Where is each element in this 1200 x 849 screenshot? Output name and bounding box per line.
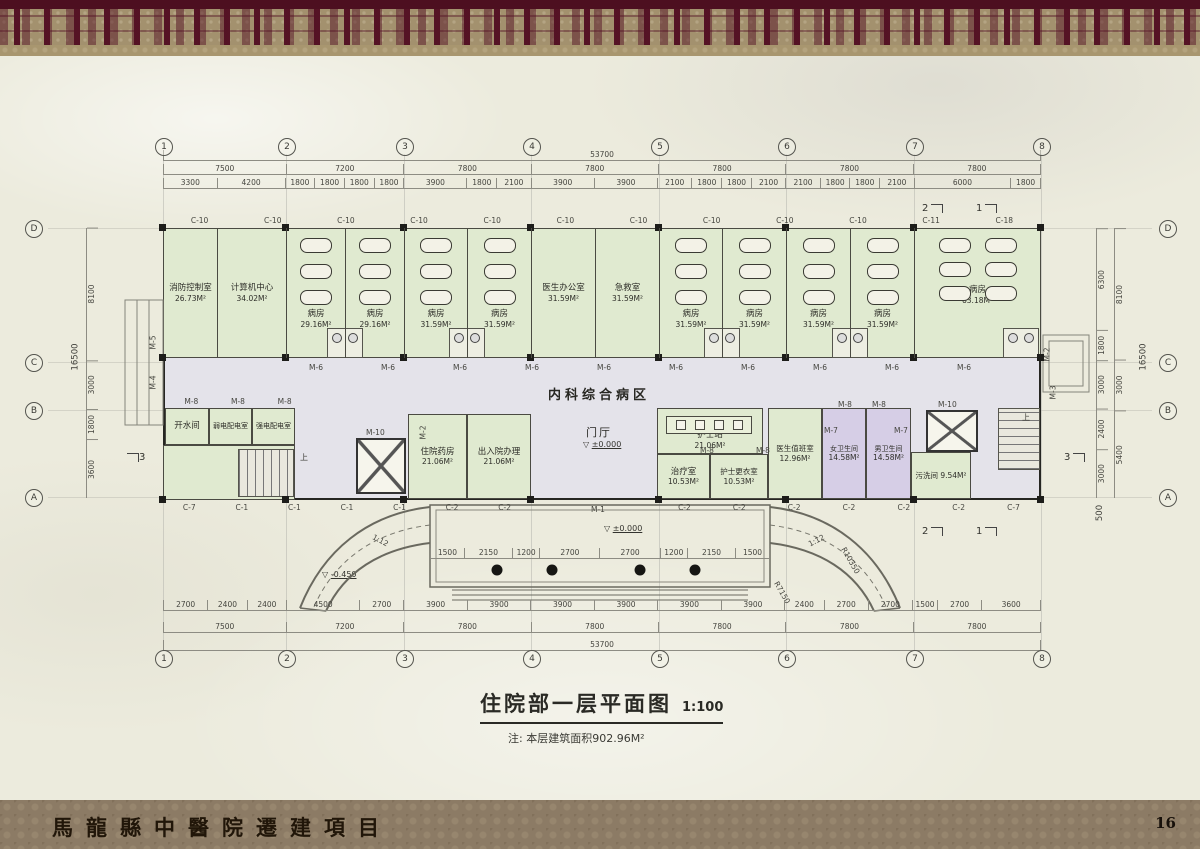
toilet-fixture-icon xyxy=(709,333,719,343)
dimension-value: 3900 xyxy=(721,600,784,610)
ramp-radius-outer-label: R10350 xyxy=(839,546,861,576)
opening-tag: C-10 xyxy=(483,216,501,225)
footer-band: 馬龍縣中醫院遷建項目 16 xyxy=(0,800,1200,849)
door-tag-m8: M-8 xyxy=(838,400,852,409)
toilet-fixture-icon xyxy=(332,333,342,343)
dimension-value: 3900 xyxy=(530,600,593,610)
structural-column xyxy=(282,496,289,503)
grid-bubble-3: 3 xyxy=(396,138,414,156)
room-name-label: 病房 xyxy=(405,309,467,320)
right-below-dimension: 500 xyxy=(1095,505,1105,521)
grid-bubble-3: 3 xyxy=(396,650,414,668)
stair-up-label: 上 xyxy=(300,452,308,463)
door-tag-m8: M-8 xyxy=(872,400,886,409)
room-area-label: 31.59M² xyxy=(532,294,595,303)
dimension-value: 7800 xyxy=(913,164,1041,174)
room-name-label: 开水间 xyxy=(174,421,200,432)
bed-group xyxy=(346,238,404,305)
dimension-value: 1800 xyxy=(849,178,879,188)
dimension-value: 2100 xyxy=(751,178,785,188)
opening-tag: C-2 xyxy=(498,503,511,512)
dimension-value: 3000 xyxy=(1097,360,1108,409)
opening-tag: M-8 xyxy=(231,397,245,406)
dimension-value: 1800 xyxy=(466,178,496,188)
nurse-counter xyxy=(666,416,752,434)
bottom-segment-dimensions: 2700240024004500270039003900390039003900… xyxy=(163,600,1041,611)
room-area-label: 34.02M² xyxy=(218,294,286,303)
grid-bubble-A: A xyxy=(25,489,43,507)
room-name-label: 污洗间 xyxy=(915,471,938,480)
dimension-value: 3600 xyxy=(981,600,1041,610)
structural-column xyxy=(1037,354,1044,361)
section-marker-2: 2 xyxy=(922,203,943,214)
toilet-fixture-icon xyxy=(725,333,735,343)
chair-icon xyxy=(695,420,705,430)
dimension-value: 2400 xyxy=(1097,409,1108,449)
structural-column xyxy=(159,496,166,503)
room-name-label: 病房 xyxy=(468,309,531,320)
opening-tag: M-6 xyxy=(957,363,971,372)
room-computer-center: 计算机中心 34.02M² xyxy=(217,228,287,358)
dimension-value: 1500 xyxy=(735,548,770,558)
bed-icon xyxy=(359,238,391,253)
stairs-east xyxy=(998,408,1040,470)
bed-icon xyxy=(675,290,707,305)
drawing-sheet: 馬龍縣中醫院遷建項目 16 消防控制室 26.73M² 计算机中心 34.02M… xyxy=(0,0,1200,849)
dimension-value: 3900 xyxy=(657,600,720,610)
dimension-value: 1800 xyxy=(691,178,721,188)
door-tag-m1: M-1 xyxy=(591,505,605,514)
bed-icon xyxy=(739,290,771,305)
room-name-label: 病房 xyxy=(787,309,850,320)
bed-group xyxy=(915,238,1040,301)
room-name-label: 急救室 xyxy=(596,283,659,294)
stair-up-label: 上 xyxy=(1022,412,1030,423)
bottom-bay-dimensions: 7500720078007800780078007800 xyxy=(163,622,1041,633)
room-name-label: 出入院办理 xyxy=(478,447,521,458)
room-name-label: 强电配电室 xyxy=(256,422,291,431)
partition-wall xyxy=(914,228,915,358)
opening-tag: M-8 xyxy=(184,397,198,406)
dimension-value: 2100 xyxy=(657,178,691,188)
opening-tag: C-2 xyxy=(952,503,965,512)
partition-wall xyxy=(531,228,532,358)
door-tag-m8: M-8 xyxy=(700,446,714,455)
structural-column xyxy=(159,224,166,231)
bed-icon xyxy=(484,290,516,305)
section-marker-1: 1 xyxy=(976,526,997,537)
drawing-scale: 1:100 xyxy=(682,700,723,715)
partition-wall xyxy=(345,228,346,358)
bed-icon xyxy=(739,264,771,279)
right-mid-dimensions: 810030005400 xyxy=(1114,228,1126,498)
grid-bubble-2: 2 xyxy=(278,138,296,156)
opening-tag: M-8 xyxy=(278,397,292,406)
room-name-label: 病房 xyxy=(660,309,722,320)
bed-group xyxy=(468,238,531,305)
door-tag-m7: M-7 xyxy=(894,426,908,435)
dimension-value: 7800 xyxy=(785,622,912,632)
room-area-label: 10.53M² xyxy=(724,477,755,486)
partition-wall xyxy=(786,228,787,358)
project-title: 馬龍縣中醫院遷建項目 xyxy=(52,812,392,842)
dimension-value: 2400 xyxy=(784,600,823,610)
toilet-fixture-icon xyxy=(470,333,480,343)
door-tag-m3: M-3 xyxy=(1048,386,1057,400)
room-area-label: 14.58M² xyxy=(829,453,860,462)
dimension-value: 1800 xyxy=(1010,178,1041,188)
opening-tag: C-2 xyxy=(733,503,746,512)
dimension-value: 1800 xyxy=(1097,330,1108,360)
dimension-value: 8100 xyxy=(1115,228,1126,360)
room-pharmacy: 住院药房 21.06M² xyxy=(408,414,467,499)
top-bay-dimensions: 7500720078007800780078007800 xyxy=(163,164,1041,175)
dimension-value: 1200 xyxy=(660,548,687,558)
opening-tag: C-2 xyxy=(446,503,459,512)
bed-icon xyxy=(675,238,707,253)
bed-icon xyxy=(484,264,516,279)
bed-icon xyxy=(939,286,971,301)
dimension-value: 3000 xyxy=(1115,360,1126,410)
grid-bubble-8: 8 xyxy=(1033,138,1051,156)
structural-column xyxy=(527,496,534,503)
dimension-value: 5400 xyxy=(1115,410,1126,498)
door-tag-m7: M-7 xyxy=(824,426,838,435)
bed-icon xyxy=(803,264,835,279)
grid-bubble-6: 6 xyxy=(778,138,796,156)
dimension-value: 2700 xyxy=(868,600,912,610)
room-fire-control: 消防控制室 26.73M² xyxy=(163,228,218,358)
opening-tag: C-7 xyxy=(1007,503,1020,512)
bed-icon xyxy=(420,264,452,279)
toilet-fixture-icon xyxy=(348,333,358,343)
right-inner-dimensions: 63001800300024003000 xyxy=(1096,228,1108,498)
grid-bubble-4: 4 xyxy=(523,138,541,156)
grid-bubble-7: 7 xyxy=(906,650,924,668)
dimension-value: 7800 xyxy=(913,622,1041,632)
dimension-value: 2100 xyxy=(879,178,913,188)
level-triangle-icon: ▽ xyxy=(322,570,328,579)
bed-group xyxy=(723,238,786,305)
room-name-label: 病房 xyxy=(287,309,345,320)
partition-wall xyxy=(217,228,218,358)
room-name-label: 治疗室 xyxy=(671,467,697,478)
room-treatment: 治疗室 10.53M² xyxy=(657,454,710,499)
opening-tag: C-18 xyxy=(996,216,1014,225)
grid-bubble-B: B xyxy=(1159,402,1177,420)
dimension-value: 2700 xyxy=(163,600,207,610)
bed-icon xyxy=(300,290,332,305)
room-area-label: 31.59M² xyxy=(596,294,659,303)
top-segment-dimensions: 3300420018001800180018003900180021003900… xyxy=(163,178,1041,189)
bed-icon xyxy=(359,264,391,279)
dimension-value: 2150 xyxy=(464,548,512,558)
opening-tag: C-10 xyxy=(337,216,355,225)
grid-bubble-D: D xyxy=(25,220,43,238)
bed-group xyxy=(787,238,850,305)
dimension-value: 8100 xyxy=(87,228,98,360)
bed-group xyxy=(851,238,914,305)
room-area-label: 10.53M² xyxy=(668,477,699,486)
opening-tag: C-11 xyxy=(922,216,940,225)
toilet-fixture-icon xyxy=(837,333,847,343)
dimension-value: 7200 xyxy=(286,622,404,632)
elevator-east xyxy=(926,410,978,452)
room-name-label: 弱电配电室 xyxy=(213,422,248,431)
partition-wall xyxy=(850,228,851,358)
room-weak-electric: 弱电配电室 xyxy=(209,408,252,445)
room-name-label: 女卫生间 xyxy=(830,445,858,454)
room-men-toilet: 男卫生间 14.58M² xyxy=(866,408,911,499)
grid-bubble-A: A xyxy=(1159,489,1177,507)
opening-tag: M-6 xyxy=(885,363,899,372)
bed-icon xyxy=(675,264,707,279)
room-area-label: 21.06M² xyxy=(422,457,453,466)
grid-bubble-D: D xyxy=(1159,220,1177,238)
ramp-level-marker: ▽ -0.450 xyxy=(322,570,357,579)
dimension-value: 1800 xyxy=(374,178,404,188)
bottom-right-window-tags: C-2C-2C-2C-2C-2C-2C-7 xyxy=(657,503,1041,512)
opening-tag: C-2 xyxy=(897,503,910,512)
structural-column xyxy=(655,496,662,503)
dimension-value: 3900 xyxy=(467,600,530,610)
structural-column xyxy=(910,496,917,503)
bed-icon xyxy=(300,238,332,253)
bed-icon xyxy=(420,290,452,305)
room-admission: 出入院办理 21.06M² xyxy=(467,414,531,499)
bed-icon xyxy=(985,286,1017,301)
dimension-value: 1800 xyxy=(314,178,344,188)
room-name-label: 病房 xyxy=(851,309,914,320)
opening-tag: C-10 xyxy=(557,216,575,225)
level-triangle-icon: ▽ xyxy=(604,524,610,533)
room-area-label: 14.58M² xyxy=(873,453,904,462)
grid-bubble-7: 7 xyxy=(906,138,924,156)
bed-icon xyxy=(867,290,899,305)
dimension-value: 7800 xyxy=(785,164,912,174)
door-tag-m8: M-8 xyxy=(756,446,770,455)
opening-tag: C-1 xyxy=(235,503,248,512)
room-area-label: 9.54M² xyxy=(940,471,966,480)
stairs-west xyxy=(238,449,294,497)
opening-tag: M-6 xyxy=(669,363,683,372)
chair-icon xyxy=(733,420,743,430)
opening-tag: C-10 xyxy=(849,216,867,225)
dimension-value: 3600 xyxy=(87,439,98,498)
grid-bubble-2: 2 xyxy=(278,650,296,668)
opening-tag: M-6 xyxy=(453,363,467,372)
opening-tag: M-6 xyxy=(381,363,395,372)
room-area-label: 26.73M² xyxy=(164,294,217,303)
dimension-value: 2100 xyxy=(496,178,530,188)
section-elbow-icon xyxy=(1073,453,1085,462)
dimension-value: 2700 xyxy=(359,600,403,610)
dimension-value: 2100 xyxy=(785,178,819,188)
bed-icon xyxy=(867,264,899,279)
bed-icon xyxy=(803,290,835,305)
right-total-dimension: 16500 xyxy=(1139,343,1149,370)
dimension-value: 1800 xyxy=(285,178,315,188)
toilet-fixture-icon xyxy=(454,333,464,343)
structural-column xyxy=(159,354,166,361)
dimension-value: 3900 xyxy=(594,600,657,610)
bed-group xyxy=(405,238,467,305)
dimension-value: 6300 xyxy=(1097,228,1108,330)
bed-group xyxy=(660,238,722,305)
section-marker-3: 3 xyxy=(1064,452,1085,463)
dimension-value: 4200 xyxy=(217,178,285,188)
level-triangle-icon: ▽ xyxy=(583,440,589,449)
section-elbow-icon xyxy=(931,204,943,213)
bed-icon xyxy=(939,238,971,253)
dimension-value: 1800 xyxy=(721,178,751,188)
drawing-title-block: 住院部一层平面图1:100 xyxy=(480,688,723,724)
opening-tag: C-1 xyxy=(288,503,301,512)
room-name-label: 住院药房 xyxy=(420,447,454,458)
bed-icon xyxy=(739,238,771,253)
dimension-value: 1200 xyxy=(512,548,539,558)
opening-tag: C-10 xyxy=(630,216,648,225)
bed-icon xyxy=(420,238,452,253)
dimension-value: 7800 xyxy=(531,622,658,632)
dimension-value: 7800 xyxy=(658,622,785,632)
dimension-value: 7200 xyxy=(286,164,404,174)
dimension-value: 7800 xyxy=(658,164,785,174)
room-women-toilet: 女卫生间 14.58M² xyxy=(822,408,866,499)
bed-icon xyxy=(939,262,971,277)
toilet-fixture-icon xyxy=(1008,333,1018,343)
door-tag-m10: M-10 xyxy=(938,400,957,409)
dimension-value: 1500 xyxy=(912,600,937,610)
room-doctor-office: 医生办公室 31.59M² xyxy=(531,228,596,358)
toilet-fixture-icon xyxy=(1024,333,1034,343)
structural-column xyxy=(782,496,789,503)
opening-tag: C-2 xyxy=(678,503,691,512)
partition-wall xyxy=(467,228,468,358)
drawing-title: 住院部一层平面图 xyxy=(480,692,672,716)
door-tag-m2: M-2 xyxy=(418,426,427,440)
dimension-value: 2400 xyxy=(247,600,286,610)
opening-tag: M-6 xyxy=(813,363,827,372)
section-elbow-icon xyxy=(931,527,943,536)
room-name-label: 医生值班室 xyxy=(776,444,814,453)
opening-tag: C-2 xyxy=(788,503,801,512)
ornamental-lattice-border xyxy=(0,0,1200,56)
elevator-west xyxy=(356,438,406,494)
bed-icon xyxy=(300,264,332,279)
room-hot-water: 开水间 xyxy=(165,408,209,445)
dimension-value: 7500 xyxy=(163,622,286,632)
toilet-fixture-icon xyxy=(853,333,863,343)
grid-bubble-1: 1 xyxy=(155,650,173,668)
grid-bubble-5: 5 xyxy=(651,650,669,668)
opening-tag: C-1 xyxy=(393,503,406,512)
partition-wall xyxy=(659,228,660,358)
bed-icon xyxy=(484,238,516,253)
partition-wall xyxy=(286,228,287,358)
dimension-value: 2150 xyxy=(687,548,735,558)
opening-tag: C-7 xyxy=(183,503,196,512)
section-elbow-icon xyxy=(985,204,997,213)
opening-tag: M-6 xyxy=(525,363,539,372)
partition-wall xyxy=(722,228,723,358)
dimension-value: 7500 xyxy=(163,164,286,174)
bed-group xyxy=(287,238,345,305)
ramp-slope-label: 1:12 xyxy=(371,533,390,549)
lobby-label: 门厅 xyxy=(586,424,612,440)
room-area-label: 21.06M² xyxy=(484,457,515,466)
dimension-value: 3900 xyxy=(403,178,466,188)
left-total-dimension: 16500 xyxy=(71,343,81,370)
left-dimensions: 8100300018003600 xyxy=(86,228,98,498)
grid-bubble-1: 1 xyxy=(155,138,173,156)
room-area-label: 12.96M² xyxy=(780,454,811,463)
room-name-label: 病房 xyxy=(346,309,404,320)
dimension-value: 2400 xyxy=(207,600,246,610)
bottom-total-dimension: 53700 xyxy=(163,640,1041,651)
dimension-value: 1800 xyxy=(344,178,374,188)
opening-tag: M-6 xyxy=(597,363,611,372)
grid-bubble-C: C xyxy=(1159,354,1177,372)
room-emergency: 急救室 31.59M² xyxy=(595,228,660,358)
structural-column xyxy=(1037,224,1044,231)
bed-icon xyxy=(985,262,1017,277)
dimension-value: 2700 xyxy=(824,600,868,610)
dimension-value: 1800 xyxy=(820,178,850,188)
section-marker-3: 3 xyxy=(124,452,145,463)
dimension-value: 4500 xyxy=(286,600,359,610)
ramp-slope-label: 1:12 xyxy=(807,533,826,549)
dimension-value: 3300 xyxy=(163,178,217,188)
room-name-label: 医生办公室 xyxy=(532,283,595,294)
door-tag-m4: M-4 xyxy=(148,376,157,390)
grid-bubble-6: 6 xyxy=(778,650,796,668)
dimension-value: 2700 xyxy=(937,600,981,610)
structural-column xyxy=(1037,496,1044,503)
ward-bathroom-pod xyxy=(1003,328,1039,358)
bed-icon xyxy=(803,238,835,253)
dimension-value: 3900 xyxy=(531,178,594,188)
section-marker-1: 1 xyxy=(976,203,997,214)
chair-icon xyxy=(714,420,724,430)
room-name-label: 护士更衣室 xyxy=(720,467,758,476)
entrance-dimensions: 15002150120027002700120021501500 xyxy=(430,548,770,559)
dimension-value: 1800 xyxy=(87,409,98,439)
entrance-level-marker: ▽ ±0.000 xyxy=(604,524,642,533)
dimension-value: 3000 xyxy=(1097,449,1108,498)
dimension-value: 2700 xyxy=(539,548,599,558)
dimension-value: 53700 xyxy=(163,640,1041,650)
opening-tag: C-10 xyxy=(191,216,209,225)
partition-wall xyxy=(404,228,405,358)
drawing-note: 注: 本层建筑面积902.96M² xyxy=(508,730,645,746)
grid-bubble-5: 5 xyxy=(651,138,669,156)
opening-tag: M-6 xyxy=(741,363,755,372)
dimension-value: 7800 xyxy=(403,164,530,174)
section-elbow-icon xyxy=(985,527,997,536)
grid-bubble-4: 4 xyxy=(523,650,541,668)
grid-bubble-C: C xyxy=(25,354,43,372)
opening-tag: C-10 xyxy=(410,216,428,225)
bed-icon xyxy=(359,290,391,305)
section-marker-2: 2 xyxy=(922,526,943,537)
bed-icon xyxy=(867,238,899,253)
room-name-label: 计算机中心 xyxy=(218,283,286,294)
partition-wall xyxy=(595,228,596,358)
opening-tag: C-1 xyxy=(341,503,354,512)
opening-tag: C-10 xyxy=(264,216,282,225)
room-doctor-duty: 医生值班室 12.96M² xyxy=(768,408,822,499)
